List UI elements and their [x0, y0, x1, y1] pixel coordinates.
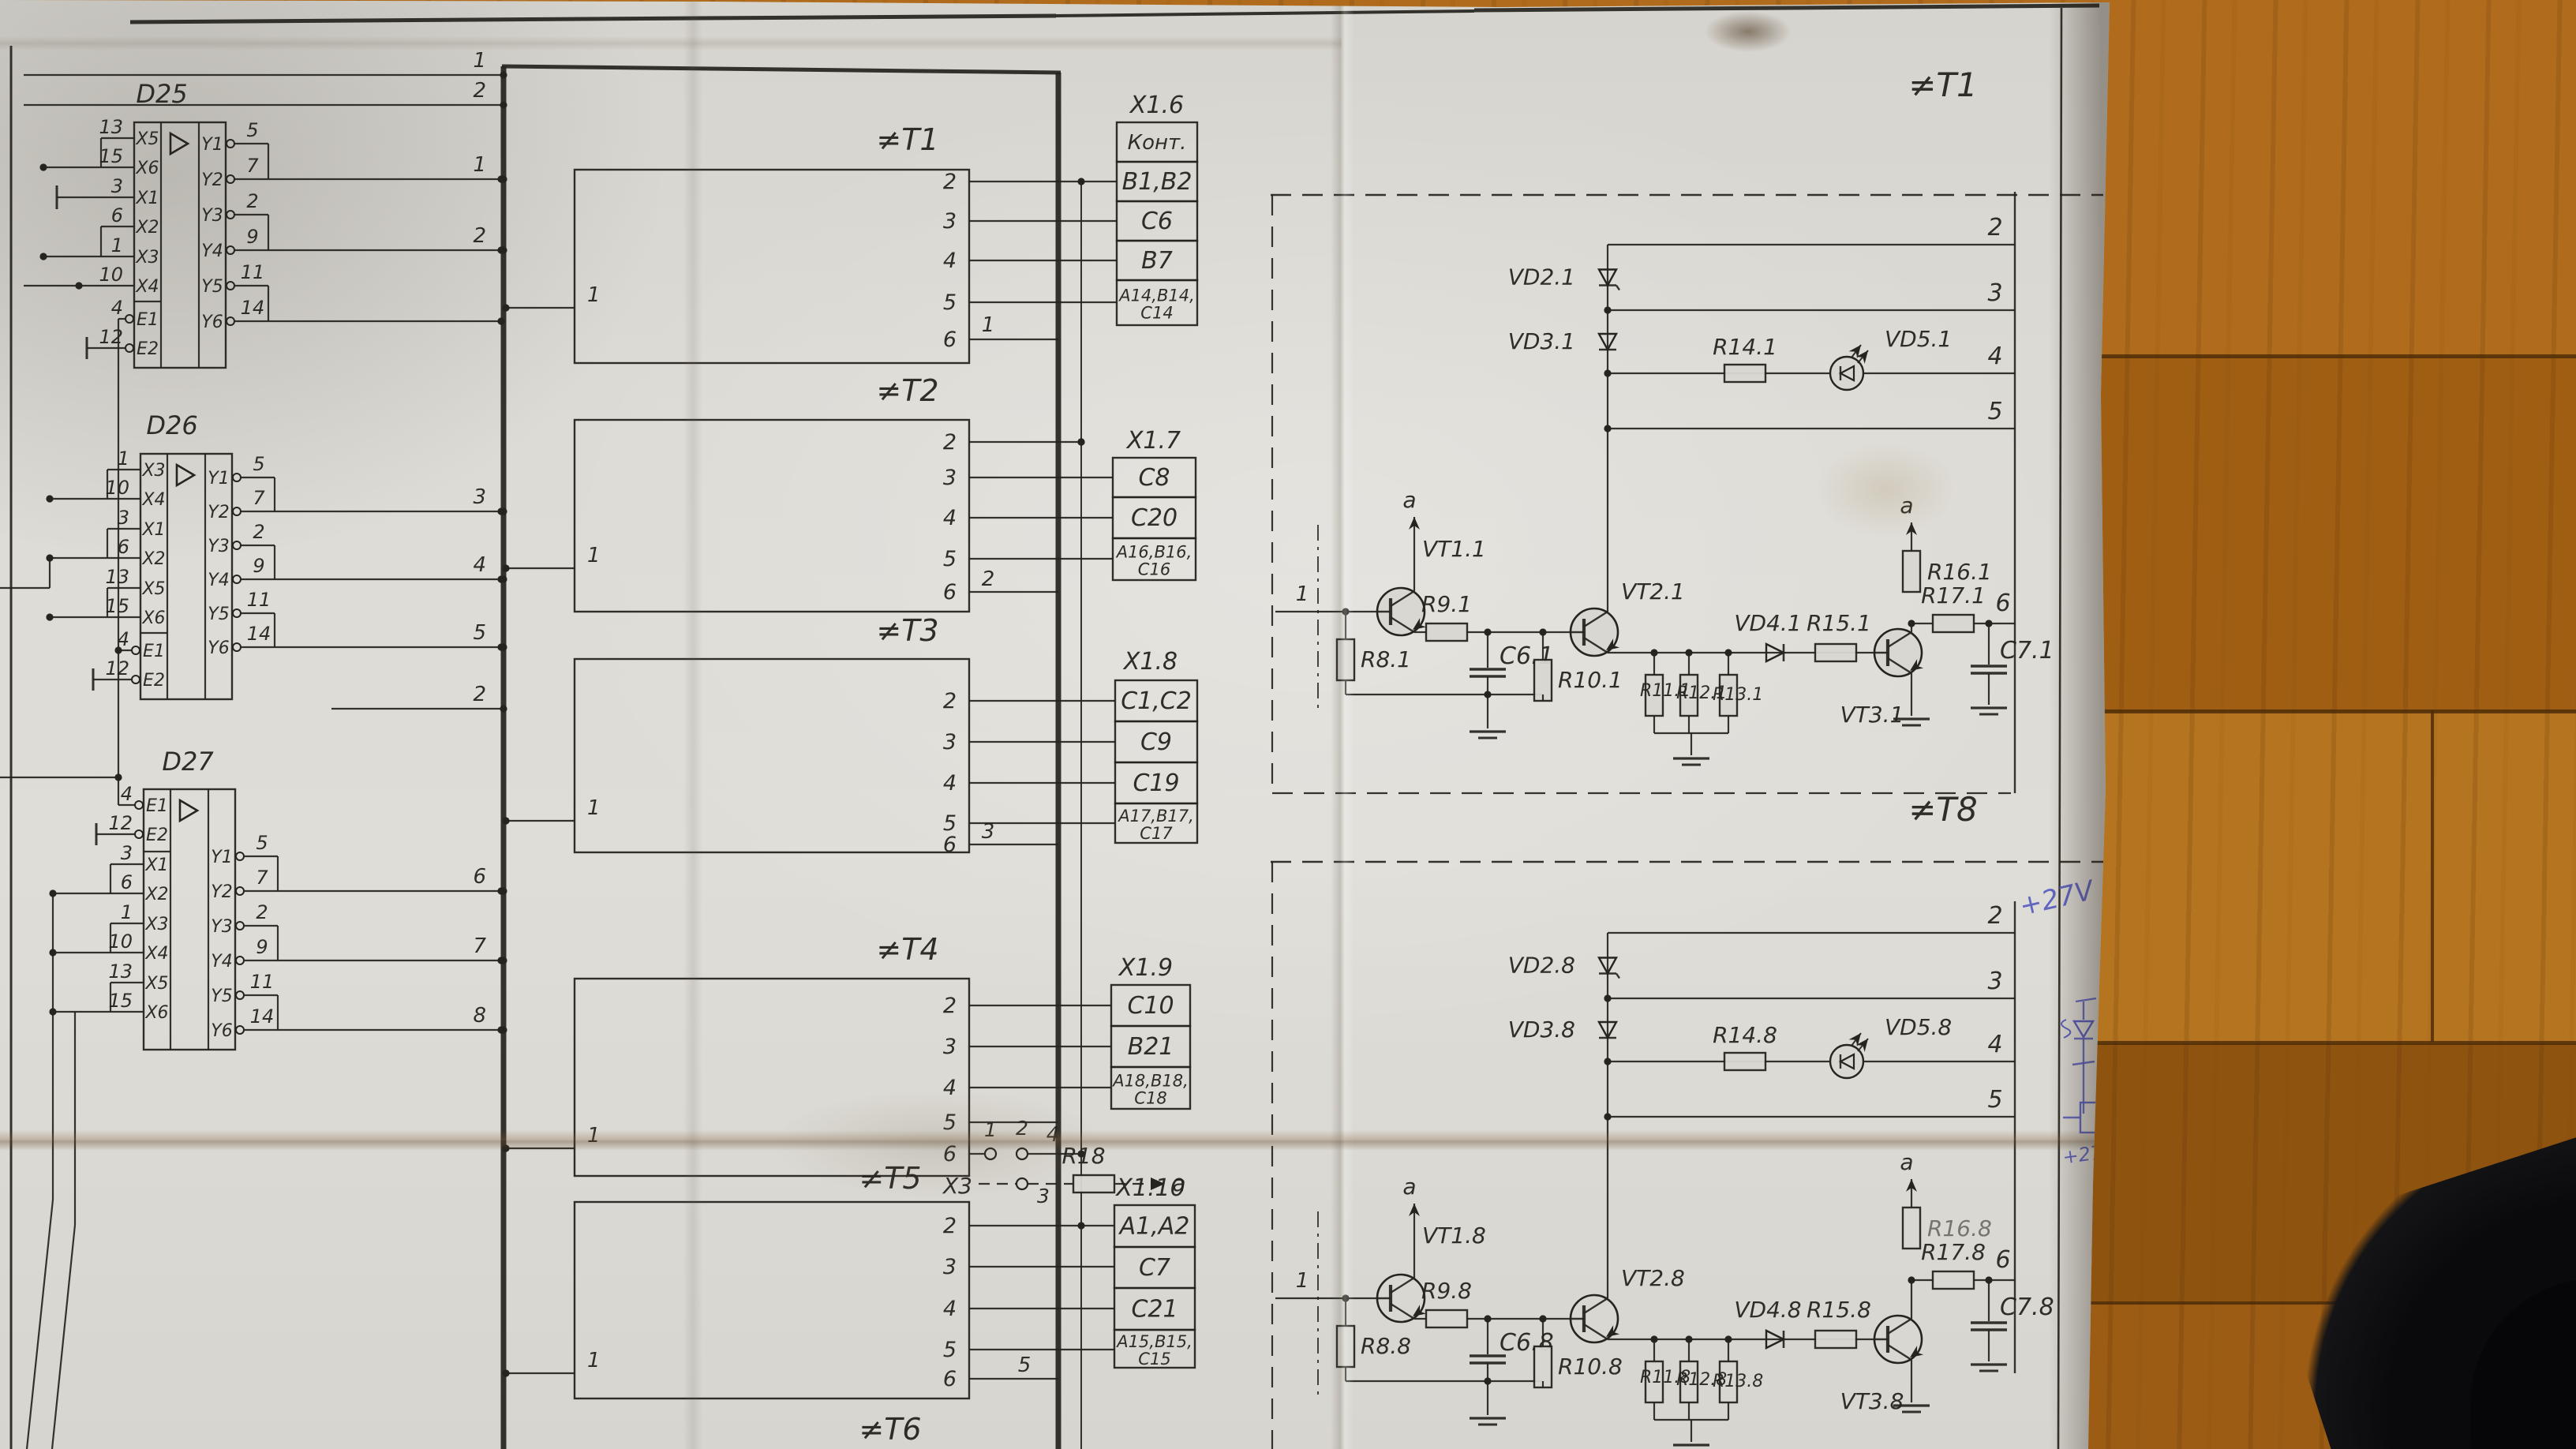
chip-pin-number: 11 — [247, 589, 271, 611]
component-label: VD4.8 — [1734, 1297, 1801, 1323]
connector-title: X1.6 — [1129, 92, 1184, 119]
chip-input-label: X1 — [144, 856, 168, 875]
inversion-bubble — [233, 541, 241, 549]
module-title: ≠T1 — [1908, 66, 1978, 104]
chip-input-label: E2 — [137, 339, 159, 359]
chip-input-label: X2 — [135, 218, 159, 238]
resistor-symbol — [1933, 615, 1974, 632]
chip-pin-number: 5 — [256, 832, 268, 854]
zener-tick — [1616, 974, 1619, 979]
chip-pin-number: 1 — [121, 901, 133, 923]
connector-contact: С15 — [1138, 1350, 1170, 1368]
connector-title: X1.8 — [1122, 648, 1178, 676]
t-block-pin: 4 — [943, 249, 957, 273]
junction-dot — [1604, 425, 1611, 432]
chip-pin-number: 7 — [246, 155, 259, 177]
t-block-pin: 6 — [943, 328, 957, 352]
chip-input-label: X3 — [141, 461, 165, 481]
chip-pin-number: 15 — [108, 990, 133, 1012]
chip-input-label: X1 — [141, 520, 165, 540]
chip-input-label: E1 — [137, 310, 159, 330]
connector-contact: А14,В14, — [1118, 286, 1195, 305]
inversion-bubble — [233, 575, 241, 583]
inversion-bubble — [132, 676, 140, 683]
module-input-pin: 1 — [1296, 1269, 1309, 1293]
chip-pin-number: 15 — [99, 145, 123, 167]
chip-input-label: X1 — [135, 189, 159, 208]
junction-dot — [500, 957, 507, 964]
module-pin: 5 — [1987, 398, 2002, 425]
junction-dot — [500, 175, 507, 182]
junction-dot — [39, 163, 47, 170]
junction-dot — [1604, 306, 1611, 313]
t-block-title: ≠T6 — [859, 1412, 921, 1447]
buffer-triangle-icon — [180, 800, 197, 821]
connector-title: X1.9 — [1118, 954, 1173, 982]
bus-line — [502, 66, 1061, 73]
chip-pin-number: 3 — [111, 175, 123, 197]
contact-circle — [1017, 1178, 1028, 1189]
module-pin: 6 — [1995, 1246, 2010, 1274]
chip-pin-number: 5 — [246, 119, 258, 141]
inversion-bubble — [227, 175, 234, 183]
component-label: R9.8 — [1421, 1278, 1472, 1304]
contact-number: 1 — [984, 1118, 997, 1141]
inversion-bubble — [227, 246, 234, 254]
junction-dot — [1604, 369, 1611, 376]
chip-pin-number: 13 — [108, 960, 133, 983]
chip-output-label: Y5 — [208, 605, 229, 624]
chip-input-label: E2 — [146, 826, 168, 845]
chip-output-label: Y4 — [201, 241, 223, 261]
chip-output-label: Y2 — [208, 503, 229, 522]
t-block-title: ≠T1 — [876, 122, 938, 157]
component-label: R10.1 — [1558, 667, 1623, 693]
chip-output-label: Y2 — [201, 170, 223, 190]
component-label: VT1.8 — [1422, 1222, 1486, 1249]
contact-number: 3 — [1037, 1185, 1050, 1207]
connector-contact: В21 — [1128, 1033, 1174, 1061]
connector-contact: В1,В2 — [1122, 168, 1193, 196]
component-label: R14.8 — [1713, 1022, 1777, 1048]
wire — [2076, 998, 2096, 1002]
component-label: VT1.1 — [1422, 536, 1486, 562]
inversion-bubble — [233, 507, 241, 515]
chip-title: D26 — [146, 410, 197, 440]
inversion-bubble — [236, 887, 244, 895]
inversion-bubble — [227, 211, 234, 219]
inversion-bubble — [236, 991, 244, 999]
junction-dot — [502, 1144, 509, 1151]
connector-contact: С21 — [1131, 1296, 1178, 1324]
contact-number: 2 — [1016, 1117, 1028, 1140]
junction-dot — [46, 613, 53, 620]
connector-contact: С18 — [1134, 1089, 1166, 1108]
chip-pin-number: 11 — [241, 261, 265, 283]
component-label: R9.1 — [1421, 591, 1472, 617]
t-block-pin: 2 — [943, 1214, 957, 1238]
resistor-symbol — [1426, 623, 1467, 641]
component-label: R8.1 — [1361, 646, 1411, 672]
component-label: C7.8 — [2000, 1294, 2054, 1321]
component-label: R16.8 — [1927, 1215, 1992, 1241]
connector-contact: С14 — [1140, 304, 1173, 323]
chip-pin-number: 14 — [247, 623, 271, 645]
net-number: 4 — [1046, 1123, 1060, 1147]
module-pin: 3 — [1987, 279, 2002, 307]
chip-pin-number: 9 — [253, 555, 264, 577]
chip-input-label: X6 — [144, 1003, 168, 1023]
component-label: VD3.1 — [1508, 328, 1575, 354]
junction-dot — [502, 817, 509, 824]
chip-input-label: X5 — [135, 129, 159, 149]
chip-output-label: Y1 — [201, 135, 223, 155]
t-block-pin: 4 — [943, 771, 957, 796]
net-label: a — [1900, 492, 1913, 519]
chip-input-label: X4 — [135, 277, 159, 297]
chip-pin-number: 12 — [108, 812, 133, 834]
t-block-pin: 6 — [943, 580, 957, 605]
t-block-input-pin: 1 — [587, 283, 601, 307]
inversion-bubble — [233, 643, 241, 651]
chip-pin-number: 9 — [246, 226, 258, 248]
junction-dot — [502, 1369, 509, 1376]
chip-output-label: Y4 — [208, 571, 229, 590]
junction-dot — [502, 564, 509, 571]
connector-title: X1.7 — [1125, 427, 1181, 455]
module-pin: 3 — [1987, 968, 2002, 995]
chip-pin-number: 1 — [111, 234, 123, 256]
handwritten-mark — [2061, 1020, 2070, 1038]
component-label: R13.1 — [1713, 685, 1763, 705]
connector-contact: С20 — [1131, 504, 1178, 532]
resistor-symbol — [1724, 365, 1765, 382]
t-block-pin: 5 — [943, 547, 957, 571]
chip-pin-number: 15 — [105, 595, 129, 617]
net-number: 7 — [473, 934, 486, 958]
t-block-pin: 4 — [943, 1076, 957, 1100]
t-block-input-pin: 1 — [587, 796, 601, 820]
t-block-pin: 3 — [943, 466, 957, 490]
chip-input-label: X3 — [144, 915, 168, 934]
component-label: VT2.8 — [1621, 1265, 1685, 1291]
connector-contact: С7 — [1139, 1254, 1170, 1282]
wire — [27, 1200, 53, 1449]
connector-contact: С17 — [1140, 824, 1173, 843]
t-block-pin: 2 — [943, 994, 957, 1018]
chip-pin-number: 13 — [99, 116, 123, 138]
zener-tick — [1616, 286, 1619, 290]
component-label: VD2.1 — [1508, 264, 1575, 290]
t-block-pin: 3 — [943, 209, 957, 234]
component-label: R15.8 — [1807, 1297, 1871, 1323]
connector-contact: А17,В17, — [1117, 807, 1194, 826]
connector-contact: С10 — [1127, 992, 1174, 1020]
module-pin: 4 — [1987, 343, 2002, 370]
t-block-pin: 2 — [943, 170, 957, 194]
connector-contact: С16 — [1138, 560, 1170, 579]
component-label: VD3.8 — [1508, 1017, 1575, 1043]
connector-contact: А16,В16, — [1115, 543, 1193, 562]
schematic-paper-sheet: D25X513X615X13X26X31X410E14E212Y15Y27Y32… — [0, 0, 2110, 1449]
t-block-pin: 2 — [943, 689, 957, 713]
handwritten-diode-icon — [2074, 1021, 2093, 1037]
chip-input-label: E1 — [146, 796, 168, 816]
chip-output-label: Y3 — [211, 917, 232, 937]
net-label: a — [1402, 487, 1416, 513]
chip-output-label: Y5 — [201, 277, 223, 297]
t-block-title: ≠T2 — [876, 373, 938, 408]
component-label: VT3.8 — [1840, 1388, 1904, 1414]
t-block-pin: 6 — [943, 833, 957, 857]
chip-input-label: X4 — [141, 490, 165, 510]
junction-dot — [500, 575, 507, 582]
t-block-pin: 5 — [943, 1110, 957, 1135]
inversion-bubble — [236, 852, 244, 860]
plank-seam — [2431, 710, 2434, 1042]
junction-dot — [497, 317, 504, 324]
t-block-body — [575, 979, 969, 1176]
resistor-symbol — [1815, 644, 1856, 661]
net-number: 2 — [473, 683, 486, 706]
chip-input-label: X2 — [144, 885, 168, 904]
t-block-title: ≠T3 — [876, 613, 938, 648]
resistor-symbol — [1426, 1310, 1467, 1327]
chip-output-label: Y5 — [211, 987, 232, 1006]
chip-pin-number: 10 — [108, 930, 133, 953]
inversion-bubble — [227, 317, 234, 325]
junction-dot — [1604, 994, 1611, 1002]
connector-contact: А18,В18, — [1111, 1072, 1189, 1091]
connector-contact: С19 — [1133, 769, 1179, 797]
chip-output-label: Y6 — [201, 313, 223, 332]
t-block-pin: 5 — [943, 290, 957, 315]
net-number: 2 — [982, 567, 995, 591]
junction-dot — [500, 643, 507, 650]
component-label: R10.8 — [1558, 1354, 1623, 1380]
connector-header: Конт. — [1128, 131, 1187, 155]
chip-pin-number: 5 — [253, 453, 264, 475]
resistor-symbol — [1337, 639, 1354, 680]
chip-input-label: X6 — [135, 159, 159, 178]
chip-title: D27 — [162, 747, 214, 777]
connector-title: X3 — [942, 1173, 972, 1199]
module-pin: 2 — [1987, 902, 2002, 930]
module-title: ≠T8 — [1908, 790, 1978, 829]
junction-dot — [500, 101, 507, 108]
chip-output-label: Y3 — [201, 206, 223, 226]
buffer-triangle-icon — [177, 465, 194, 485]
chip-input-label: X2 — [141, 549, 165, 569]
schematic-drawing: D25X513X615X13X26X31X410E14E212Y15Y27Y32… — [0, 0, 2110, 1449]
connector-contact: А15,В15, — [1115, 1332, 1193, 1351]
connector-contact: В7 — [1141, 247, 1173, 275]
connector-contact: С8 — [1138, 464, 1170, 492]
sheet-border — [2058, 8, 2061, 1449]
junction-dot — [502, 304, 509, 311]
module-pin: 4 — [1987, 1031, 2002, 1058]
chip-pin-number: 9 — [256, 936, 268, 958]
component-label: VD4.1 — [1734, 610, 1801, 636]
sheet-border — [1056, 11, 1474, 16]
connector-contact: С1,С2 — [1121, 687, 1192, 715]
buffer-triangle-icon — [170, 133, 188, 154]
junction-dot — [39, 253, 47, 260]
t-block-pin: 6 — [943, 1142, 957, 1166]
chip-pin-number: 12 — [99, 326, 123, 348]
t-block-pin: 3 — [943, 1035, 957, 1059]
contact-circle — [985, 1148, 996, 1159]
handwritten-note: +27V — [2016, 874, 2099, 923]
component-label: VT2.1 — [1621, 578, 1685, 605]
t-block-pin: 6 — [943, 1367, 957, 1391]
contact-circle — [1017, 1148, 1028, 1159]
chip-output-label: Y1 — [208, 469, 229, 489]
resistor-symbol — [1815, 1331, 1856, 1348]
t-block-pin: 4 — [943, 506, 957, 530]
net-number: 2 — [473, 224, 486, 248]
junction-dot — [500, 71, 507, 78]
chip-input-label: X5 — [144, 974, 168, 994]
inversion-bubble — [132, 646, 140, 654]
net-number: 1 — [982, 313, 995, 337]
chip-pin-number: 11 — [250, 971, 275, 993]
resistor-symbol — [1903, 551, 1920, 592]
junction-dot — [114, 646, 122, 653]
chip-pin-number: 4 — [121, 783, 133, 805]
chip-pin-number: 14 — [241, 297, 265, 319]
t-block-body — [575, 170, 969, 363]
chip-input-label: X5 — [141, 579, 165, 599]
chip-pin-number: 7 — [253, 487, 265, 509]
connector-contact: С6 — [1141, 208, 1173, 235]
component-label: VD2.8 — [1508, 953, 1575, 979]
component-label: VT3.1 — [1840, 702, 1904, 728]
chip-pin-number: 7 — [256, 867, 268, 889]
t-block-pin: 3 — [943, 1255, 957, 1279]
chip-input-label: E2 — [143, 671, 165, 691]
chip-input-label: X3 — [135, 248, 159, 268]
t-block-body — [575, 1202, 969, 1398]
chip-pin-number: 6 — [121, 871, 133, 893]
inversion-bubble — [233, 609, 241, 617]
net-number: 3 — [473, 485, 486, 509]
chip-pin-number: 4 — [111, 297, 123, 319]
component-label: R17.8 — [1921, 1239, 1986, 1265]
net-label: a — [1900, 1149, 1913, 1175]
net-number: 2 — [473, 79, 486, 103]
inversion-bubble — [236, 922, 244, 930]
t-block-body — [575, 659, 969, 852]
component-label: VD5.1 — [1885, 326, 1952, 352]
t-block-pin: 5 — [943, 1338, 957, 1362]
net-number: 3 — [982, 820, 995, 844]
inversion-bubble — [233, 474, 241, 481]
chip-pin-number: 6 — [111, 204, 123, 227]
junction-dot — [1604, 1058, 1611, 1065]
component-label: R17.1 — [1921, 582, 1986, 608]
chip-output-label: Y6 — [208, 638, 229, 658]
chip-output-label: Y2 — [211, 882, 232, 902]
component-label: R16.1 — [1927, 559, 1992, 585]
t-block-body — [575, 420, 969, 612]
connector-contact: А1,А2 — [1118, 1213, 1190, 1241]
module-pin: 6 — [1995, 590, 2010, 617]
junction-dot — [500, 246, 507, 253]
net-label: a — [1402, 1174, 1416, 1200]
inversion-bubble — [227, 140, 234, 148]
chip-pin-number: 2 — [246, 190, 258, 212]
junction-dot — [500, 705, 507, 712]
net-number: 8 — [473, 1004, 486, 1028]
chip-output-label: Y4 — [211, 952, 232, 972]
chip-pin-number: 10 — [105, 477, 129, 499]
component-label: C7.1 — [2000, 637, 2054, 665]
t-block-input-pin: 1 — [587, 544, 601, 567]
junction-dot — [1077, 438, 1084, 445]
resistor-symbol — [1073, 1175, 1114, 1193]
component-label: R13.8 — [1713, 1372, 1763, 1391]
chip-output-label: Y3 — [208, 537, 229, 556]
resistor-symbol — [1903, 1207, 1920, 1249]
net-number: 5 — [473, 621, 486, 645]
module-pin: 2 — [1987, 214, 2002, 241]
chip-pin-number: 12 — [105, 657, 129, 680]
junction-dot — [1604, 1113, 1611, 1120]
net-label: a — [1172, 1170, 1185, 1196]
resistor-symbol — [1337, 1326, 1354, 1367]
chip-input-label: X4 — [144, 944, 168, 964]
chip-pin-number: 2 — [256, 901, 268, 923]
chip-input-label: X6 — [141, 608, 165, 628]
connector-contact: С9 — [1140, 728, 1172, 756]
chip-pin-number: 2 — [253, 521, 264, 543]
chip-input-label: E1 — [143, 642, 165, 661]
wire — [52, 1225, 75, 1449]
chip-output-label: Y1 — [211, 848, 232, 867]
t-block-title: ≠T5 — [859, 1161, 921, 1196]
net-number: 6 — [473, 865, 486, 889]
component-label: R15.1 — [1807, 610, 1871, 636]
t-block-title: ≠T4 — [876, 932, 938, 967]
component-label: R18 — [1061, 1143, 1105, 1169]
component-label: R8.8 — [1361, 1333, 1411, 1359]
inversion-bubble — [135, 801, 143, 809]
t-block-input-pin: 1 — [587, 1124, 601, 1148]
net-number: 1 — [473, 49, 486, 73]
t-block-input-pin: 1 — [587, 1349, 601, 1372]
inversion-bubble — [125, 344, 133, 352]
component-label: R14.1 — [1713, 334, 1777, 360]
net-number: 4 — [473, 553, 486, 577]
module-pin: 5 — [1987, 1086, 2002, 1114]
t-block-pin: 4 — [943, 1297, 957, 1321]
photo-scene: D25X513X615X13X26X31X410E14E212Y15Y27Y32… — [0, 0, 2576, 1449]
sheet-border — [130, 16, 1056, 22]
chip-pin-number: 13 — [105, 566, 129, 588]
module-input-pin: 1 — [1296, 582, 1309, 606]
inversion-bubble — [227, 282, 234, 290]
chip-pin-number: 10 — [99, 264, 123, 286]
net-number: 5 — [1018, 1354, 1032, 1377]
junction-dot — [500, 887, 507, 894]
inversion-bubble — [135, 830, 143, 838]
inversion-bubble — [236, 1026, 244, 1034]
chip-pin-number: 14 — [250, 1005, 275, 1028]
resistor-symbol — [1933, 1271, 1974, 1289]
inversion-bubble — [125, 315, 133, 323]
component-label: VD5.8 — [1885, 1014, 1952, 1040]
